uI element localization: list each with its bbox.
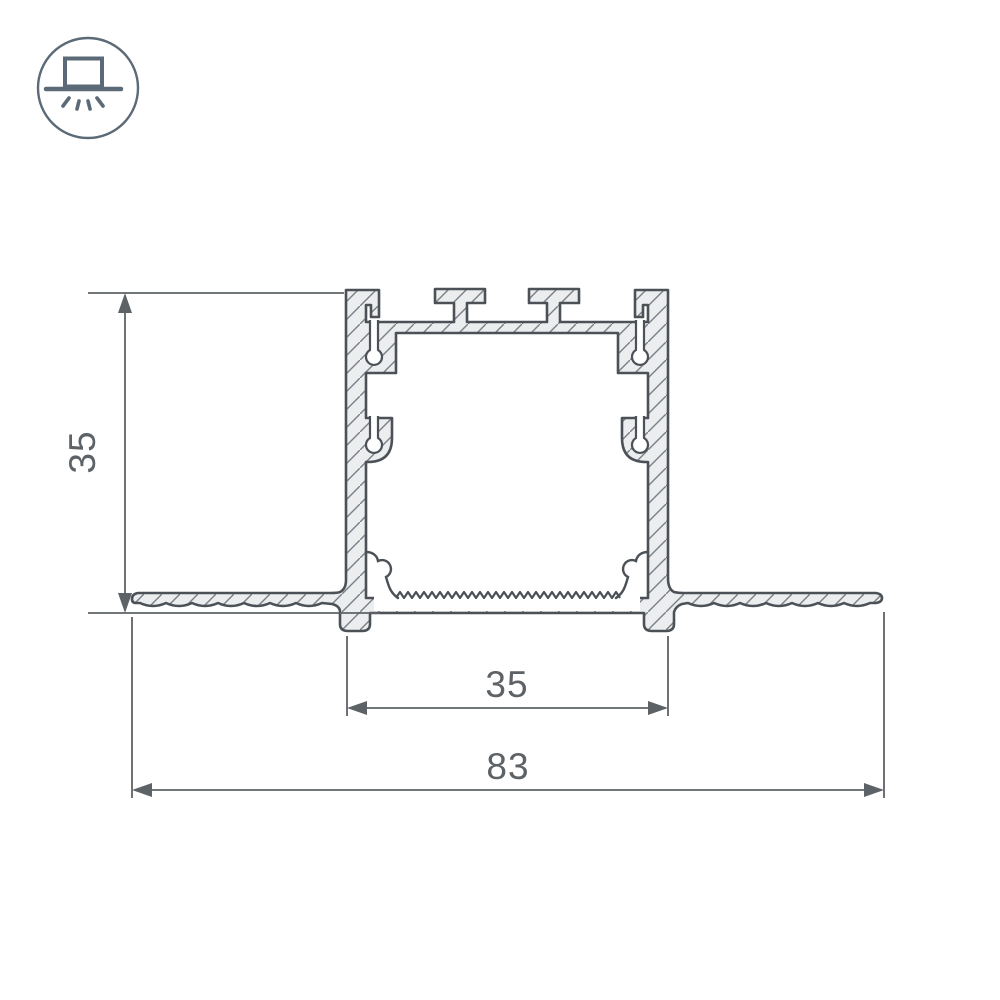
icon-lamp-box: [65, 59, 102, 87]
dimension-body-width: 35: [347, 636, 668, 716]
dimension-overall-width: 83: [132, 612, 884, 798]
arrowhead-right: [864, 783, 884, 797]
drawing-canvas: 35 35 83: [0, 0, 1000, 1000]
screw-ports: [366, 320, 648, 453]
profile-cross-section: [132, 289, 882, 631]
dimension-height-value: 35: [62, 430, 103, 473]
icon-light-rays: [63, 98, 103, 109]
arrowhead-left: [132, 783, 152, 797]
recessed-light-icon: [38, 38, 138, 138]
profile-body: [132, 289, 882, 631]
technical-drawing: 35 35 83: [0, 0, 1000, 1000]
dimension-body-width-value: 35: [485, 664, 528, 705]
dimension-height: 35: [62, 293, 380, 613]
arrowhead-right: [648, 701, 668, 715]
dimension-overall-width-value: 83: [486, 746, 529, 787]
arrowhead-up: [118, 293, 132, 313]
arrowhead-down: [118, 593, 132, 613]
arrowhead-left: [347, 701, 367, 715]
